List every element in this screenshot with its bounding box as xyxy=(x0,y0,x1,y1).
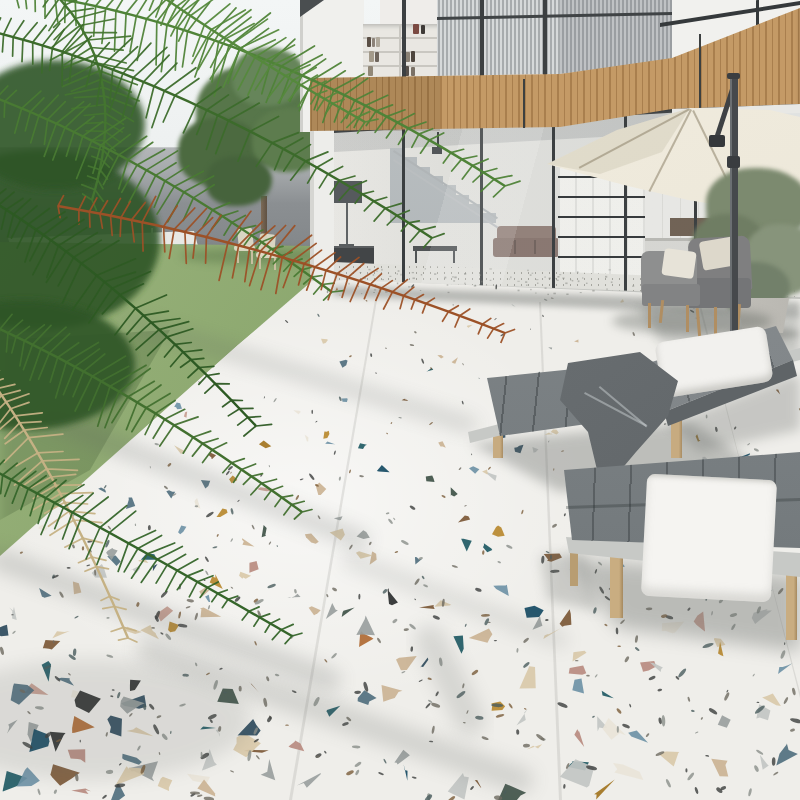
palm-fronds xyxy=(0,0,800,800)
terrace-scene xyxy=(0,0,800,800)
